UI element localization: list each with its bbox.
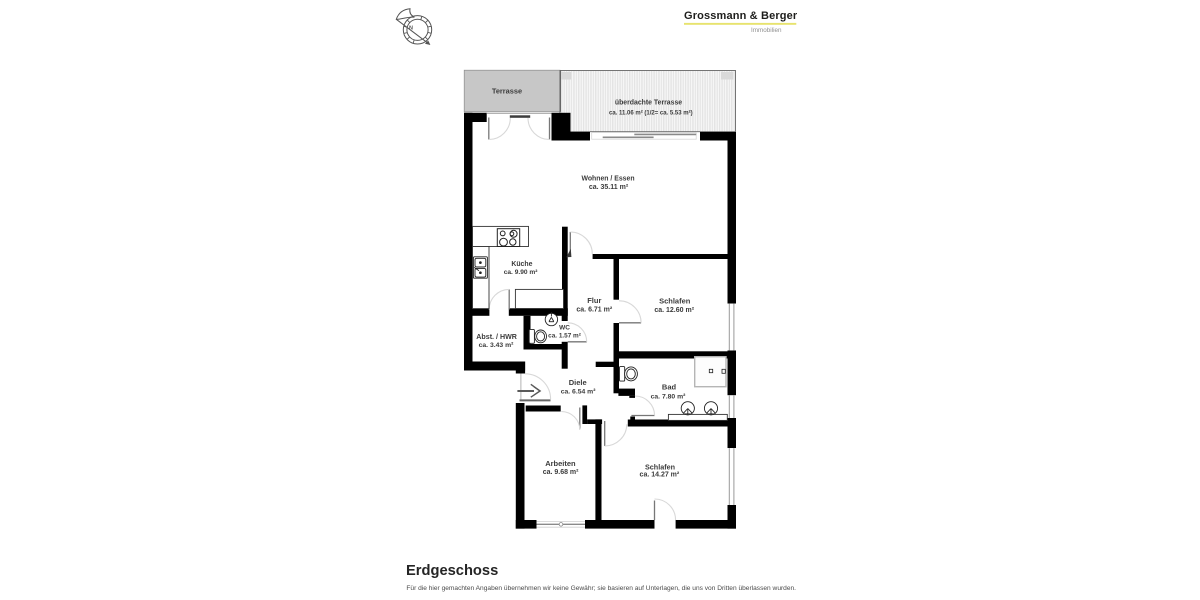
svg-text:Arbeiten: Arbeiten: [545, 459, 576, 468]
svg-text:Flur: Flur: [587, 296, 601, 305]
svg-text:ca. 6.54 m²: ca. 6.54 m²: [561, 389, 596, 396]
svg-text:ca. 14.27 m²: ca. 14.27 m²: [640, 471, 680, 478]
svg-text:Schlafen: Schlafen: [659, 296, 691, 305]
svg-text:ca. 7.80 m²: ca. 7.80 m²: [651, 394, 686, 401]
svg-text:Abst. / HWR: Abst. / HWR: [476, 333, 517, 341]
svg-text:WC: WC: [559, 324, 570, 331]
svg-text:ca. 9.90 m²: ca. 9.90 m²: [504, 269, 539, 276]
svg-text:Schlafen: Schlafen: [645, 463, 675, 472]
svg-text:Küche: Küche: [511, 261, 532, 268]
svg-text:ca. 3.43 m²: ca. 3.43 m²: [479, 342, 514, 349]
svg-text:Bad: Bad: [662, 382, 677, 391]
svg-text:überdachte Terrasse: überdachte Terrasse: [615, 100, 682, 107]
svg-text:Grossmann & Berger: Grossmann & Berger: [684, 10, 798, 22]
svg-text:ca. 1.57 m²: ca. 1.57 m²: [548, 333, 581, 340]
svg-text:Terrasse: Terrasse: [492, 87, 522, 96]
svg-text:N: N: [409, 26, 413, 32]
svg-text:ca. 6.71 m²: ca. 6.71 m²: [576, 307, 612, 314]
svg-text:Erdgeschoss: Erdgeschoss: [406, 563, 498, 579]
svg-text:ca. 11.06 m² (1/2= ca. 5.53 m²: ca. 11.06 m² (1/2= ca. 5.53 m²): [609, 110, 693, 117]
svg-text:ca. 12.60 m²: ca. 12.60 m²: [654, 307, 694, 314]
svg-text:ca. 35.11 m²: ca. 35.11 m²: [589, 184, 629, 191]
svg-text:Diele: Diele: [569, 378, 587, 387]
svg-text:ca. 9.68 m²: ca. 9.68 m²: [543, 469, 579, 476]
svg-text:Wohnen / Essen: Wohnen / Essen: [581, 176, 634, 183]
svg-text:Für die hier gemachten Angaben: Für die hier gemachten Angaben übernehme…: [406, 585, 796, 592]
svg-text:Immobilien: Immobilien: [751, 27, 782, 34]
